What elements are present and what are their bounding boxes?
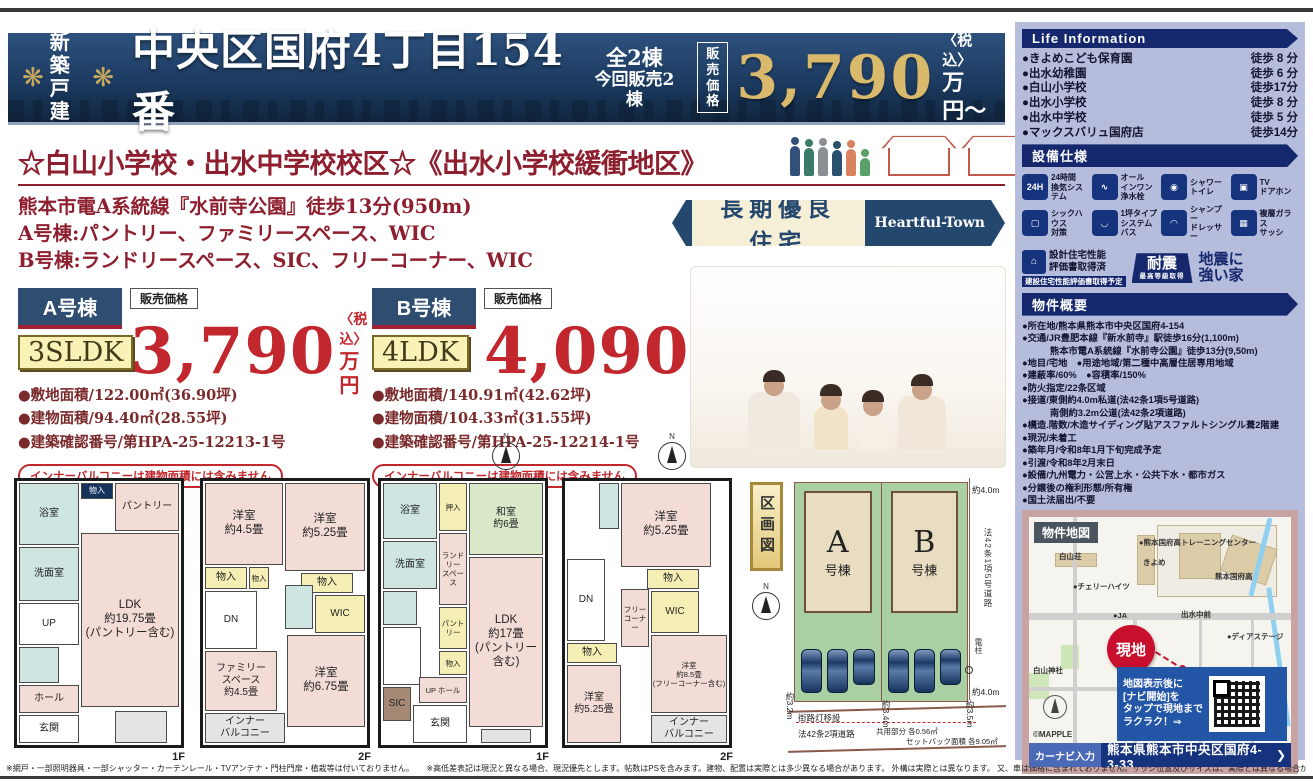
property-title: 中央区国府4丁目154番 [132, 16, 572, 140]
long-term-quality-badge: 長期優良住宅 Heartful-Town [672, 200, 1005, 246]
life-info-list: ●きよめこども保育園 徒歩 8 分 ●出水幼稚園 徒歩 6 分 ●白山小学校 徒… [1022, 52, 1298, 140]
building-a: A 号棟 [804, 491, 872, 613]
equipment-icon: 24H [1022, 174, 1048, 200]
map-label: ●ディアステージ [1227, 631, 1283, 642]
floorplan-1: 浴室物入パントリー洗面室UPホール玄関LDK 約19.75畳 (パントリー含む)… [14, 478, 184, 748]
map-label: 熊本国府高 [1215, 571, 1253, 582]
room: 物入 [205, 567, 247, 589]
headline-underline [18, 184, 1005, 186]
unit-man-yen: 万円 [339, 349, 359, 397]
overview-item: ●所在地/熊本県熊本市中央区国府4-154 [1022, 320, 1298, 332]
facility-name: ●出水幼稚園 [1022, 67, 1086, 82]
equipment-label: シャワー トイレ [1190, 178, 1222, 196]
unit-cards: A号棟 3SLDK 販売価格 3,790 〈税込〉 万円 ●敷地面積/122.0… [18, 288, 690, 488]
facility-name: ●白山小学校 [1022, 81, 1086, 96]
map-label: 白山荘 [1059, 551, 1082, 562]
overview-item: ●引渡/令和8年2月末日 [1022, 457, 1298, 469]
equipment-icon: ∿ [1092, 174, 1118, 200]
design-cert-text: 設計住宅性能 評価書取得済 [1049, 250, 1106, 273]
price-unit: 〈税込〉 万円〜 [942, 30, 991, 125]
person-icon [790, 146, 800, 176]
map-label: ●チェリーハイツ [1073, 581, 1130, 592]
lot-b: B 号棟 [882, 483, 968, 701]
building-permit: ●建築確認番号/第HPA-25-12214-1号 [372, 431, 690, 454]
unit-price: 販売価格 3,790 〈税込〉 万円 [130, 288, 367, 397]
east-road-label: 法42条1項5号道路 [982, 528, 994, 608]
new-build-badge-text: 新築 戸建 [50, 32, 86, 124]
room: ファミリー スペース 約4.5畳 [205, 651, 277, 711]
life-info-item: ●きよめこども保育園 徒歩 8 分 [1022, 52, 1298, 67]
overview-item: ●築年月/令和8年1月下旬完成予定 [1022, 444, 1298, 456]
room: フリー コーナー [621, 589, 649, 647]
equipment-item: ∿ オール インワン 浄水栓 [1092, 173, 1160, 201]
room: 洋室 約5.25畳 [285, 483, 365, 571]
room: 物入 [81, 483, 113, 499]
lot-a-suffix: 号棟 [825, 560, 851, 579]
room: 洋室 約4.5畳 [205, 483, 283, 565]
car-nav-bar: カーナビ入力 熊本県熊本市中央区国府4-3-33 ❯ [1029, 743, 1291, 767]
room: WIC [315, 595, 365, 633]
life-info-item: ●出水小学校 徒歩 8 分 [1022, 96, 1298, 111]
car-icon [940, 649, 961, 685]
school-district-headline: ☆白山小学校・出水中学校校区☆《出水小学校緩衝地区》 [18, 142, 718, 181]
overview-item: ●建蔽率/60% ●容積率/150% [1022, 369, 1298, 381]
price-label: 販売 価格 [697, 42, 728, 112]
qr-panel: 地図表示後に [ナビ開始]を タップで現地まで ラクラク！⇒ [1117, 667, 1287, 741]
equipment-icon: ▣ [1231, 174, 1257, 200]
room: 洗面室 [19, 547, 79, 601]
room: 洋室 約8.5畳 (フリーコーナー含む) [651, 635, 727, 713]
unit-price-label: 販売価格 [130, 288, 198, 309]
earthquake-badge: 耐震 最高等級取得 [1132, 253, 1193, 283]
south-road-label: 法42条2項道路 [798, 728, 855, 740]
child-figure [814, 406, 848, 450]
map-label: ●JA [1113, 611, 1127, 620]
overview-item: ●現況/未着工 [1022, 432, 1298, 444]
room [383, 627, 421, 685]
person-icon [846, 149, 856, 176]
sidebar: Life Information ●きよめこども保育園 徒歩 8 分 ●出水幼稚… [1015, 22, 1305, 760]
utility-pole-label: 電柱 [973, 638, 984, 654]
car-icon [827, 649, 848, 693]
overview-item: ●設備/九州電力・公営上水・公共下水・都市ガス [1022, 469, 1298, 481]
overview-item: ●国土法届出/不要 [1022, 494, 1298, 506]
room: 玄関 [19, 715, 79, 743]
header-band: ❋ 新築 戸建 ❋ 中央区国府4丁目154番 全2棟 今回販売2棟 販売 価格 … [8, 33, 1005, 125]
room: 洗面室 [383, 541, 437, 589]
map-copyright: ©MAPPLE [1033, 730, 1072, 739]
equipment-label: シャンプー ドレッサー [1190, 205, 1229, 242]
room: LDK 約19.75畳 (パントリー含む) [81, 533, 179, 707]
person-icon [860, 158, 870, 176]
facility-name: ●マックスバリュ国府店 [1022, 126, 1144, 141]
unit-layout: 3SLDK [18, 335, 133, 370]
dim-35: 約3.5m [964, 700, 976, 727]
unit-tax-note: 〈税込〉 [339, 312, 367, 348]
unit-name-badge: B号棟 [372, 288, 476, 329]
life-info-item: ●白山小学校 徒歩17分 [1022, 81, 1298, 96]
map-panel: 物件地図 現地 白山荘 [1022, 510, 1298, 774]
unit-price-value: 4,090 [484, 322, 689, 383]
equipment-icon: ▢ [1022, 210, 1048, 236]
walk-time: 徒歩14分 [1251, 126, 1298, 141]
south-road-area: 約3.2m 街路灯移設 法42条2項道路 共用部分 各0.56㎡ 約3.4m セ… [788, 702, 1006, 762]
setback-note: セットバック面積 各9.05㎡ [906, 736, 998, 747]
site-lots: A 号棟 B 号棟 [794, 482, 968, 702]
overview-header: 物件概要 [1022, 293, 1298, 316]
car-icon [801, 649, 822, 693]
overview-item: ●地目/宅地 ●用途地域/第二種中高層住居専用地域 [1022, 357, 1298, 369]
person-icon [804, 148, 814, 176]
car-nav-address: 熊本県熊本市中央区国府4-3-33 [1101, 743, 1271, 767]
units-total: 全2棟 [590, 45, 680, 70]
equipment-icon: ◉ [1161, 174, 1187, 200]
certifications: ⌂ 設計住宅性能 評価書取得済 建設住宅性能評価書取得予定 耐震 最高等級取得 … [1022, 248, 1298, 289]
equipment-grid: 24H 24時間 換気システム ∿ オール インワン 浄水栓 ◉ シャワー トイ… [1022, 171, 1298, 243]
room [481, 729, 531, 743]
heartful-town-logo: Heartful-Town [875, 216, 985, 230]
unit-card: B号棟 4LDK 販売価格 4,090 〈税込〉 万円 ●敷地面積/140.91… [372, 288, 690, 488]
facility-name: ●きよめこども保育園 [1022, 52, 1132, 67]
mother-figure [898, 396, 946, 450]
lot-b-suffix: 号棟 [911, 560, 937, 579]
room [383, 591, 417, 625]
overview-item: ●分譲後の権利形態/所有権 [1022, 482, 1298, 494]
equipment-icon: ▦ [1231, 210, 1257, 236]
room: ホール [19, 685, 79, 713]
life-info-item: ●マックスバリュ国府店 徒歩14分 [1022, 126, 1298, 141]
ornament-right-icon: ❋ [92, 62, 114, 93]
quake-strong-text: 地震に 強い家 [1199, 252, 1244, 285]
life-info-item: ●出水中学校 徒歩 5 分 [1022, 111, 1298, 126]
site-marker: 現地 [1107, 625, 1155, 673]
unit-card: A号棟 3SLDK 販売価格 3,790 〈税込〉 万円 ●敷地面積/122.0… [18, 288, 336, 488]
dim-34: 約3.4m [880, 700, 892, 727]
performance-cert: ⌂ 設計住宅性能 評価書取得済 建設住宅性能評価書取得予定 [1022, 250, 1126, 287]
equipment-icon: ◡ [1092, 210, 1118, 236]
long-term-quality-text: 長期優良住宅 [692, 186, 865, 260]
building-area: ●建物面積/104.33㎡(31.55坪) [372, 407, 690, 430]
map-compass-icon [1043, 695, 1067, 719]
dim-left: 約3.2m [784, 692, 796, 719]
parking-a [801, 649, 875, 693]
room: ランドリー スペース [439, 533, 467, 605]
map-label: 出水中前 [1181, 609, 1211, 620]
equipment-label: TV ドアホン [1260, 178, 1292, 196]
room: パントリー [439, 607, 467, 649]
tax-note: 〈税込〉 [942, 31, 972, 69]
units-count: 全2棟 今回販売2棟 [590, 45, 680, 111]
overview-list: ●所在地/熊本県熊本市中央区国府4-154 ●交通/JR豊肥本線『新水前寺』駅徒… [1022, 320, 1298, 507]
unit-layout: 4LDK [372, 335, 469, 370]
house-outline-icon [888, 148, 950, 176]
life-info-item: ●出水幼稚園 徒歩 6 分 [1022, 67, 1298, 82]
building-b: B 号棟 [891, 491, 959, 613]
map-label: ●熊本国府高トレーニングセンター [1139, 537, 1256, 548]
floor-label: 2F [720, 751, 733, 763]
room: LDK 約17畳 (パントリー含む) [469, 557, 543, 727]
room: DN [567, 559, 605, 641]
overview-item: 熊本市電A系統線『水前寺公園』徒歩13分(9,50m) [1022, 345, 1298, 357]
room: パントリー [115, 483, 179, 531]
room: 玄関 [413, 705, 467, 743]
walk-time: 徒歩 8 分 [1251, 52, 1298, 67]
lot-a-letter: A [827, 525, 849, 560]
map-label: 白山神社 [1033, 665, 1063, 676]
person-icon [818, 147, 828, 176]
room: インナー バルコニー [651, 715, 727, 743]
room [115, 711, 167, 743]
floorplan-3: 浴室押入和室 約6畳洗面室ランドリー スペースパントリー物入UP ホールSIC玄… [378, 478, 548, 748]
unit-b-features: B号棟:ランドリースペース、SIC、フリーコーナー、WIC [18, 248, 533, 275]
car-icon [853, 649, 874, 685]
dim-top: 約4.0m [972, 484, 999, 496]
walk-time: 徒歩 6 分 [1251, 67, 1298, 82]
unit-a-features: A号棟:パントリー、ファミリースペース、WIC [18, 221, 533, 248]
unit-price-label: 販売価格 [484, 288, 552, 309]
overview-item: ●接道/東側約4.0m私道(法42条1項5号道路) [1022, 394, 1298, 406]
room: 物入 [567, 643, 617, 663]
header-price: 販売 価格 3,790 〈税込〉 万円〜 [697, 30, 991, 125]
compass-icon [658, 442, 686, 470]
room: 浴室 [19, 483, 79, 545]
site-plan: A 号棟 B 号棟 [788, 478, 1006, 764]
equipment-label: 複層ガラス サッシ [1260, 209, 1299, 237]
overview-item: ●防火指定/22条区域 [1022, 382, 1298, 394]
east-road: 約4.0m 法42条1項5号道路 約4.0m [969, 478, 1006, 700]
overview-item: ●交通/JR豊肥本線『新水前寺』駅徒歩16分(1,100m) [1022, 332, 1298, 344]
bottom-divider [0, 776, 1313, 779]
equipment-label: オール インワン 浄水栓 [1121, 173, 1153, 201]
building-area: ●建物面積/94.40㎡(28.55坪) [18, 407, 336, 430]
map-title: 物件地図 [1034, 522, 1098, 543]
lead-lines: 熊本市電A系統線『水前寺公園』徒歩13分(950m) A号棟:パントリー、ファミ… [18, 194, 533, 275]
qr-instructions: 地図表示後に [ナビ開始]を タップで現地まで ラクラク！⇒ [1123, 679, 1203, 729]
person-icon [832, 150, 842, 176]
lot-b-letter: B [913, 525, 935, 560]
chevron-right-icon: ❯ [1271, 743, 1291, 767]
equipment-label: 1坪タイプ システムバス [1121, 209, 1160, 237]
equipment-item: ▦ 複層ガラス サッシ [1231, 205, 1299, 242]
equipment-label: 24時間 換気システム [1051, 173, 1090, 201]
unit-name-badge: A号棟 [18, 288, 122, 329]
price-value: 3,790 [736, 43, 934, 113]
room: SIC [383, 687, 411, 721]
room: 洋室 約5.25畳 [621, 483, 711, 567]
life-info-header: Life Information [1022, 29, 1298, 48]
qr-code [1209, 676, 1265, 732]
overview-item: 南側約3.2m公道(法42条2項道路) [1022, 407, 1298, 419]
top-divider [0, 8, 1313, 12]
car-icon [888, 649, 909, 693]
floorplan-2: 洋室 約4.5畳洋室 約5.25畳物入物入物入DNWICファミリー スペース 約… [200, 478, 370, 748]
access-line: 熊本市電A系統線『水前寺公園』徒歩13分(950m) [18, 194, 533, 221]
new-build-badge: ❋ 新築 戸建 ❋ [22, 32, 114, 124]
room: UP ホール [419, 677, 467, 703]
unit-price: 販売価格 4,090 〈税込〉 万円 [484, 288, 721, 397]
house-cert-icon: ⌂ [1022, 250, 1046, 274]
compass-icon [492, 442, 520, 470]
equipment-item: ▢ シックハウス 対策 [1022, 205, 1090, 242]
facility-name: ●出水小学校 [1022, 96, 1086, 111]
room: 浴室 [383, 483, 437, 539]
car-icon [914, 649, 935, 693]
room: WIC [651, 591, 699, 633]
floor-label: 1F [172, 751, 185, 763]
room: 洋室 約6.75畳 [287, 635, 365, 727]
fine-print-note1: ※網戸・一部照明器具・一部シャッター・カーテンレール・TVアンテナ・門柱門扉・植… [6, 764, 414, 773]
room: 物入 [439, 651, 467, 675]
walk-time: 徒歩17分 [1251, 81, 1298, 96]
site-plan-label: 区画図 [750, 482, 783, 571]
room [599, 483, 619, 529]
ornament-left-icon: ❋ [22, 62, 44, 93]
room: DN [205, 591, 257, 649]
man-yen: 万円〜 [942, 70, 986, 124]
equipment-item: ◡ 1坪タイプ システムバス [1092, 205, 1160, 242]
equipment-header: 設備仕様 [1022, 144, 1298, 167]
lot-a: A 号棟 [795, 483, 882, 701]
taishin-text: 耐震 [1147, 255, 1177, 272]
construction-cert-text: 建設住宅性能評価書取得予定 [1022, 276, 1126, 287]
equipment-icon: ◠ [1161, 210, 1187, 236]
room: 物入 [249, 567, 269, 589]
family-photo [690, 266, 1006, 468]
car-nav-label: カーナビ入力 [1029, 743, 1101, 767]
flyer-page: ❋ 新築 戸建 ❋ 中央区国府4丁目154番 全2棟 今回販売2棟 販売 価格 … [0, 0, 1313, 781]
floorplan-4: 洋室 約5.25畳DN物入フリー コーナーWIC洋室 約8.5畳 (フリーコーナ… [562, 478, 732, 748]
dim-bottom: 約4.0m [972, 686, 999, 698]
room: 押入 [439, 483, 467, 531]
father-figure [748, 392, 800, 450]
room: インナー バルコニー [205, 713, 285, 743]
equipment-item: 24H 24時間 換気システム [1022, 173, 1090, 201]
unit-price-value: 3,790 [130, 322, 335, 383]
units-now: 今回販売2棟 [590, 70, 680, 111]
room: 和室 約6畳 [469, 483, 543, 555]
equipment-item: ◉ シャワー トイレ [1161, 173, 1229, 201]
equipment-label: シックハウス 対策 [1051, 209, 1090, 237]
streetlight-note: 街路灯移設 [798, 712, 841, 724]
facility-name: ●出水中学校 [1022, 111, 1086, 126]
overview-item: ●構造.階数/木造サイディング貼アスファルトシングル葺2階建 [1022, 419, 1298, 431]
room [285, 585, 313, 629]
map-park [1029, 673, 1049, 699]
room: 物入 [647, 569, 699, 589]
walk-time: 徒歩 8 分 [1251, 96, 1298, 111]
equipment-item: ◠ シャンプー ドレッサー [1161, 205, 1229, 242]
building-permit: ●建築確認番号/第HPA-25-12213-1号 [18, 431, 336, 454]
room: 洋室 約5.25畳 [567, 665, 621, 743]
walk-time: 徒歩 5 分 [1251, 111, 1298, 126]
compass-icon [752, 592, 780, 620]
floor-label: 2F [358, 751, 371, 763]
map-label: きよめ [1143, 557, 1166, 568]
parking-b [888, 649, 962, 693]
unit-price-unit: 〈税込〉 万円 [339, 309, 367, 397]
room: UP [19, 603, 79, 645]
family-illustration [790, 146, 1030, 176]
room [19, 647, 59, 683]
brand-name: Heartful-Town [875, 215, 985, 231]
taishin-sub: 最高等級取得 [1140, 273, 1185, 280]
floor-label: 1F [536, 751, 549, 763]
equipment-item: ▣ TV ドアホン [1231, 173, 1299, 201]
child-figure [858, 412, 888, 450]
